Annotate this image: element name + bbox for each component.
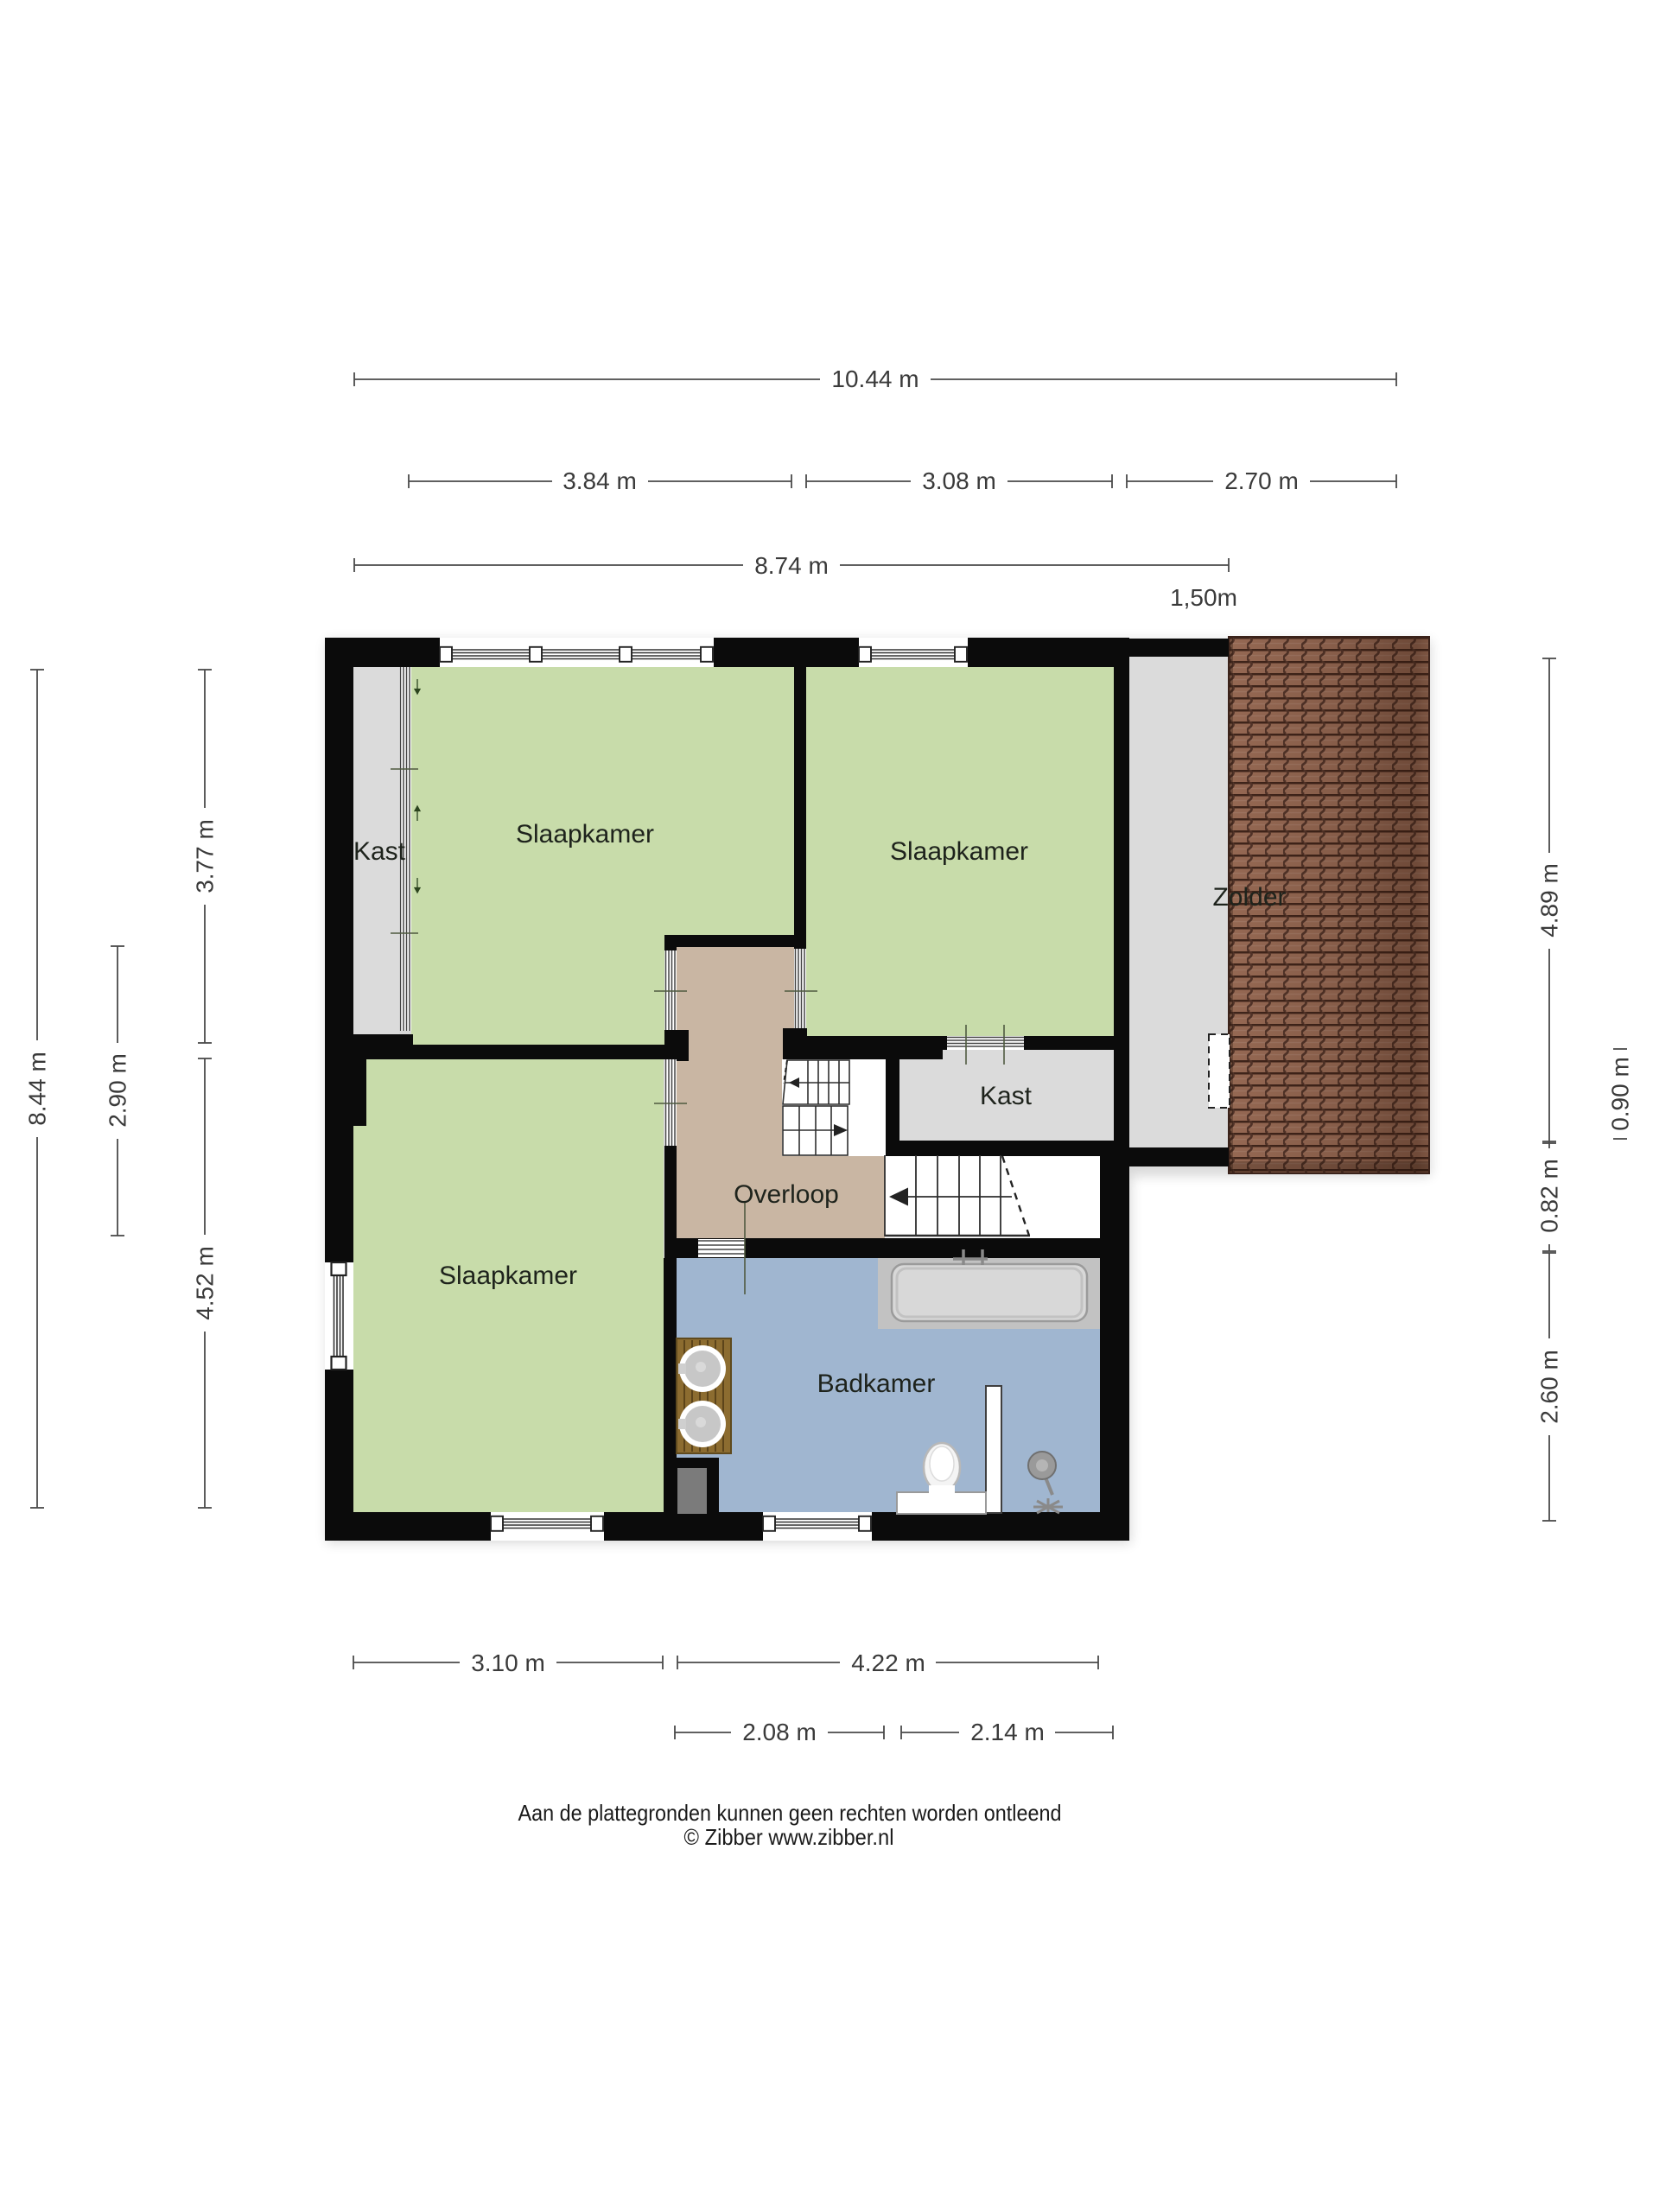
svg-text:Overloop: Overloop — [734, 1180, 839, 1209]
svg-text:3.10 m: 3.10 m — [471, 1649, 545, 1676]
svg-text:Kast: Kast — [980, 1082, 1033, 1110]
svg-text:Aan de plattegronden kunnen ge: Aan de plattegronden kunnen geen rechten… — [518, 1800, 1062, 1826]
svg-text:2.14 m: 2.14 m — [970, 1719, 1045, 1745]
svg-text:Kast: Kast — [353, 837, 406, 866]
svg-text:8.74 m: 8.74 m — [754, 552, 829, 579]
svg-text:Slaapkamer: Slaapkamer — [439, 1262, 577, 1290]
svg-text:0.90 m: 0.90 m — [1607, 1057, 1634, 1131]
svg-text:Slaapkamer: Slaapkamer — [890, 837, 1028, 866]
svg-text:3.08 m: 3.08 m — [922, 467, 996, 494]
svg-text:Zolder: Zolder — [1212, 883, 1286, 912]
svg-text:2.08 m: 2.08 m — [742, 1719, 817, 1745]
svg-text:3.84 m: 3.84 m — [563, 467, 637, 494]
svg-text:4.22 m: 4.22 m — [851, 1649, 925, 1676]
svg-text:2.70 m: 2.70 m — [1224, 467, 1299, 494]
svg-text:4.89 m: 4.89 m — [1536, 863, 1563, 938]
svg-text:4.52 m: 4.52 m — [192, 1246, 219, 1320]
svg-text:2.60 m: 2.60 m — [1536, 1350, 1563, 1424]
svg-text:10.44 m: 10.44 m — [831, 365, 918, 392]
svg-text:2.90 m: 2.90 m — [105, 1053, 131, 1128]
svg-text:© Zibber www.zibber.nl: © Zibber www.zibber.nl — [684, 1824, 894, 1850]
svg-text:8.44 m: 8.44 m — [24, 1052, 51, 1126]
svg-text:1,50m: 1,50m — [1170, 584, 1237, 611]
svg-text:Slaapkamer: Slaapkamer — [516, 820, 654, 849]
svg-text:0.82 m: 0.82 m — [1536, 1159, 1563, 1233]
svg-text:Badkamer: Badkamer — [817, 1370, 936, 1398]
svg-text:3.77 m: 3.77 m — [192, 819, 219, 893]
